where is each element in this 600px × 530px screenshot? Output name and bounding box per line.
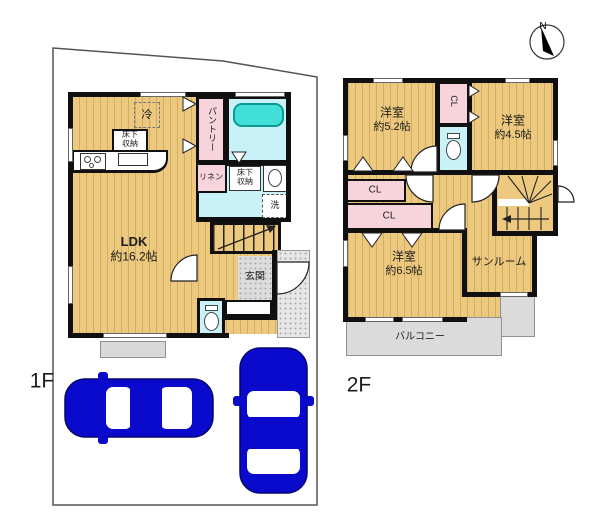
door-arc <box>472 175 499 202</box>
ldk-name: LDK <box>121 235 148 249</box>
entrance-label: 玄関 <box>245 272 265 283</box>
north-label: N <box>539 21 546 32</box>
floor1-label: 1F <box>30 369 55 392</box>
room45-size: 約4.5帖 <box>494 129 531 141</box>
balcony-label: バルコニー <box>395 332 445 343</box>
stair-detail-2f <box>498 176 552 230</box>
room52-name: 洋室 <box>380 106 404 119</box>
room65-size: 約6.5帖 <box>385 265 422 277</box>
car-1 <box>65 372 213 444</box>
floor2-label: 2F <box>347 373 372 396</box>
linen-label: リネン <box>199 174 223 183</box>
door-arc <box>411 146 437 172</box>
door-arc <box>406 175 433 202</box>
door-arcs <box>171 146 574 294</box>
closet-b-label: CL <box>383 211 396 222</box>
compass: N <box>530 21 564 59</box>
room65-name: 洋室 <box>392 250 416 263</box>
room52-size: 約5.2帖 <box>373 121 410 133</box>
ldk-size: 約16.2帖 <box>110 250 157 263</box>
car-2 <box>233 348 314 493</box>
fridge-label: 冷 <box>142 109 153 121</box>
closet-a-label: CL <box>369 185 382 196</box>
sunroom-label: サンルーム <box>472 256 527 268</box>
underfloor-storage-2-label: 床下収納 <box>234 169 256 187</box>
underfloor-storage-1-label: 床下収納 <box>119 131 141 149</box>
laundry-label: 洗 <box>270 201 279 211</box>
door-arc <box>558 186 574 202</box>
front-door-arc <box>277 262 309 294</box>
stair-direction-1f <box>218 225 276 249</box>
floor-plan-image: N 冷 床下収納 パントリー リネン 床下収納 洗 LDK 約16.2帖 玄関 … <box>0 0 600 530</box>
pantry-label: パントリー <box>206 107 216 152</box>
door-arc <box>439 204 465 230</box>
room45-name: 洋室 <box>501 114 525 127</box>
door-arc <box>171 255 197 281</box>
closet-top-label: CL <box>448 95 458 107</box>
